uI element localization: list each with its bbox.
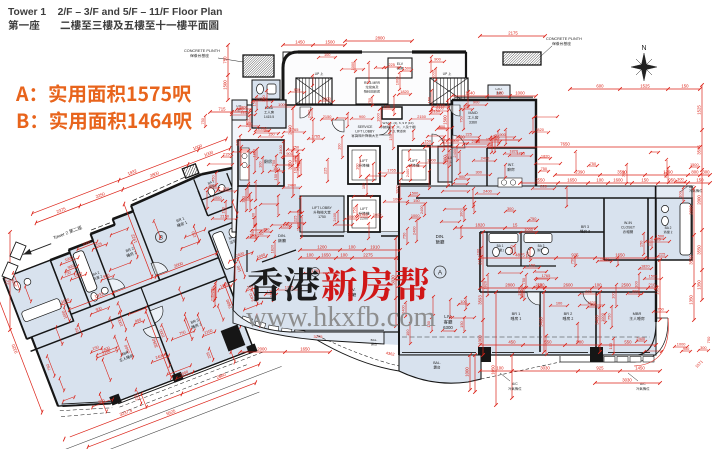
svg-text:3030: 3030	[622, 378, 632, 383]
svg-text:A/C: A/C	[512, 382, 518, 386]
svg-text:1350: 1350	[697, 280, 702, 290]
svg-text:2400: 2400	[296, 222, 301, 231]
svg-text:750: 750	[351, 206, 356, 213]
svg-text:225: 225	[241, 109, 248, 114]
svg-text:100: 100	[348, 245, 356, 250]
svg-text:15: 15	[513, 223, 518, 228]
svg-text:300: 300	[264, 128, 271, 133]
svg-text:1000: 1000	[411, 213, 420, 218]
svg-text:100: 100	[384, 104, 391, 109]
svg-text:1050: 1050	[491, 365, 496, 375]
svg-text:1500: 1500	[223, 80, 228, 90]
svg-text:1765: 1765	[312, 133, 321, 138]
svg-text:150: 150	[273, 173, 278, 180]
svg-text:1820: 1820	[444, 153, 449, 162]
svg-text:550: 550	[624, 340, 632, 345]
svg-text:BA 1: BA 1	[497, 244, 504, 248]
svg-text:100: 100	[306, 253, 314, 258]
svg-text:300: 300	[632, 289, 639, 294]
svg-text:1450: 1450	[295, 40, 305, 45]
svg-text:1600: 1600	[613, 178, 623, 183]
svg-text:2550: 2550	[535, 178, 545, 183]
svg-text:100: 100	[634, 280, 639, 287]
svg-text:900: 900	[294, 87, 301, 92]
svg-text:1820: 1820	[252, 148, 257, 157]
svg-text:1820: 1820	[269, 244, 274, 253]
svg-text:100: 100	[608, 342, 613, 349]
svg-text:5030: 5030	[391, 275, 396, 285]
svg-text:BR 1: BR 1	[512, 311, 521, 316]
svg-text:225: 225	[585, 289, 592, 294]
svg-text:100: 100	[459, 210, 464, 217]
svg-text:1650: 1650	[300, 347, 310, 352]
svg-text:1525: 1525	[640, 84, 650, 89]
svg-text:3275: 3275	[314, 334, 324, 339]
svg-text:100: 100	[324, 52, 331, 57]
svg-text:DIN.: DIN.	[278, 233, 286, 238]
svg-text:1000: 1000	[373, 212, 382, 217]
svg-text:LIFT LOBBY: LIFT LOBBY	[312, 206, 332, 210]
svg-text:100: 100	[496, 91, 504, 96]
svg-text:225: 225	[235, 139, 240, 146]
svg-text:MAID: MAID	[468, 111, 478, 115]
svg-text:225: 225	[663, 172, 668, 179]
svg-text:1000: 1000	[347, 214, 356, 219]
svg-text:1000: 1000	[435, 106, 444, 111]
svg-text:1765: 1765	[542, 273, 551, 278]
svg-text:CLOSET: CLOSET	[621, 226, 636, 230]
svg-text:225: 225	[388, 62, 395, 67]
svg-text:100: 100	[250, 212, 255, 219]
svg-text:2400: 2400	[306, 109, 311, 118]
svg-text:750: 750	[210, 286, 215, 293]
svg-text:1820: 1820	[475, 223, 485, 228]
svg-text:2150: 2150	[323, 114, 332, 119]
svg-text:1000: 1000	[677, 341, 686, 346]
svg-text:2800: 2800	[375, 36, 385, 41]
svg-text:1000: 1000	[509, 244, 514, 253]
svg-text:750: 750	[541, 166, 548, 171]
svg-text:900: 900	[473, 100, 480, 105]
svg-text:N: N	[641, 45, 646, 52]
svg-text:750: 750	[530, 216, 537, 221]
svg-text:3460: 3460	[595, 315, 600, 325]
svg-text:1820: 1820	[541, 153, 550, 158]
svg-text:550: 550	[544, 340, 552, 345]
svg-text:2400: 2400	[483, 188, 492, 193]
svg-text:750: 750	[211, 175, 216, 182]
svg-text:W-IN: W-IN	[624, 221, 632, 225]
svg-text:Tower 1 2/F – 3/F and 5/F –: Tower 1 2/F – 3/F and 5/F – 11/F Floor P…	[8, 7, 222, 18]
svg-text:1000: 1000	[519, 289, 524, 298]
svg-text:LIFT LOBBY: LIFT LOBBY	[355, 130, 375, 134]
svg-text:2400: 2400	[452, 148, 457, 157]
svg-text:225: 225	[536, 282, 543, 287]
svg-text:1820: 1820	[509, 148, 518, 153]
svg-text:2275: 2275	[363, 253, 373, 258]
svg-text:1750: 1750	[318, 215, 326, 219]
svg-text:6300: 6300	[443, 325, 453, 330]
svg-text:1350: 1350	[655, 285, 660, 295]
svg-text:1650: 1650	[321, 253, 331, 258]
svg-text:1650: 1650	[567, 178, 577, 183]
svg-text:1765: 1765	[387, 167, 396, 172]
svg-text:1000: 1000	[478, 335, 483, 345]
svg-text:www.hkxfb.com: www.hkxfb.com	[246, 302, 436, 333]
svg-text:900: 900	[499, 132, 506, 137]
svg-text:150: 150	[641, 178, 649, 183]
svg-text:150: 150	[696, 178, 704, 183]
svg-text:3460: 3460	[539, 317, 544, 327]
svg-text:150: 150	[459, 320, 464, 327]
svg-text:2400: 2400	[287, 183, 296, 188]
svg-text:750: 750	[402, 232, 407, 239]
svg-text:600: 600	[596, 84, 604, 89]
svg-text:750: 750	[590, 161, 597, 166]
svg-text:7650: 7650	[560, 142, 570, 147]
svg-text:1500: 1500	[402, 66, 411, 71]
svg-text:2500: 2500	[621, 283, 631, 288]
svg-text:150: 150	[426, 96, 431, 103]
svg-text:100: 100	[678, 190, 683, 197]
svg-text:1820: 1820	[600, 256, 609, 261]
svg-text:300: 300	[677, 176, 684, 181]
svg-text:900: 900	[286, 151, 293, 156]
svg-text:1000: 1000	[394, 76, 399, 85]
svg-text:100: 100	[393, 197, 400, 202]
svg-text:225: 225	[540, 183, 547, 188]
svg-text:225: 225	[209, 295, 214, 302]
svg-text:3030: 3030	[540, 366, 550, 371]
svg-text:2150: 2150	[220, 213, 229, 218]
svg-text:1765: 1765	[359, 212, 368, 217]
svg-text:1500: 1500	[322, 96, 331, 101]
svg-text:1000: 1000	[375, 112, 380, 121]
svg-text:1640: 1640	[465, 91, 475, 96]
svg-text:INT.: INT.	[508, 163, 515, 167]
svg-text:3550: 3550	[697, 245, 702, 255]
svg-text:CONCRETE PLINTH: CONCRETE PLINTH	[184, 49, 220, 53]
svg-text:750: 750	[657, 306, 664, 311]
svg-text:300: 300	[700, 345, 707, 350]
svg-text:100: 100	[596, 178, 604, 183]
svg-text:2400: 2400	[419, 205, 424, 214]
svg-text:2000: 2000	[257, 347, 267, 352]
svg-text:BR 2: BR 2	[564, 311, 573, 316]
svg-text:750: 750	[293, 144, 300, 149]
svg-text:2000: 2000	[697, 195, 702, 205]
svg-text:150: 150	[486, 136, 493, 141]
svg-text:100: 100	[594, 283, 602, 288]
svg-text:100: 100	[293, 166, 298, 173]
svg-text:750: 750	[223, 56, 228, 64]
svg-text:750: 750	[458, 115, 463, 122]
svg-text:3593: 3593	[478, 295, 483, 305]
svg-text:225: 225	[654, 236, 661, 241]
svg-text:225: 225	[465, 131, 472, 136]
svg-text:1200: 1200	[317, 245, 327, 250]
svg-text:1525: 1525	[697, 105, 702, 115]
svg-text:100: 100	[257, 161, 262, 168]
svg-text:1500: 1500	[649, 274, 658, 279]
svg-text:W.M.C. (2), 6, 9 P (1F): W.M.C. (2), 6, 9 P (1F)	[382, 121, 413, 125]
svg-text:2400: 2400	[411, 226, 416, 235]
svg-text:100: 100	[340, 253, 348, 258]
svg-text:100: 100	[261, 94, 266, 101]
svg-text:1000: 1000	[465, 367, 470, 377]
svg-text:A/C: A/C	[640, 382, 646, 386]
svg-text:3360: 3360	[469, 121, 477, 125]
svg-text:A: A	[438, 270, 443, 277]
svg-text:100: 100	[496, 366, 504, 371]
svg-text:900: 900	[459, 174, 466, 179]
svg-text:1000: 1000	[278, 102, 287, 107]
svg-text:1820: 1820	[400, 89, 409, 94]
svg-text:2400: 2400	[278, 144, 283, 153]
svg-text:1820: 1820	[244, 118, 249, 127]
svg-text:2400: 2400	[405, 168, 410, 177]
svg-text:150: 150	[424, 139, 431, 144]
svg-text:150: 150	[257, 231, 264, 236]
svg-text:150: 150	[413, 198, 420, 203]
svg-text:2800: 2800	[505, 283, 515, 288]
svg-text:225: 225	[293, 216, 298, 223]
svg-text:1500: 1500	[410, 191, 419, 196]
svg-text:150: 150	[529, 262, 536, 267]
svg-text:150: 150	[251, 99, 256, 106]
svg-text:225: 225	[646, 240, 651, 247]
svg-text:100: 100	[476, 248, 481, 255]
svg-text:1000: 1000	[515, 91, 525, 96]
svg-text:LIV.: LIV.	[444, 314, 451, 319]
svg-text:225: 225	[659, 251, 666, 256]
svg-text:300: 300	[702, 170, 710, 175]
svg-text:100: 100	[223, 186, 230, 191]
svg-text:1650: 1650	[615, 253, 625, 258]
svg-text:750: 750	[521, 277, 526, 284]
svg-text:1000: 1000	[427, 158, 436, 163]
svg-text:SERVICE: SERVICE	[358, 125, 374, 129]
svg-text:100: 100	[273, 166, 280, 171]
svg-text:750: 750	[621, 170, 626, 177]
svg-text:1820: 1820	[587, 300, 596, 305]
svg-text:2400: 2400	[332, 212, 337, 221]
svg-text:1000: 1000	[395, 184, 400, 193]
svg-text:100: 100	[611, 292, 616, 299]
svg-text:LIFT: LIFT	[360, 159, 368, 163]
svg-text:3595: 3595	[697, 145, 702, 155]
svg-text:3550: 3550	[689, 255, 694, 265]
svg-text:450: 450	[508, 340, 516, 345]
svg-text:DIN.: DIN.	[436, 234, 445, 239]
svg-text:BR 3: BR 3	[581, 225, 589, 229]
svg-text:300: 300	[475, 169, 482, 174]
svg-text:BAL.: BAL.	[371, 338, 378, 342]
svg-text:1350: 1350	[689, 295, 694, 305]
svg-text:2150: 2150	[417, 114, 426, 119]
svg-text:750: 750	[200, 117, 205, 124]
svg-text:900: 900	[359, 114, 366, 119]
svg-text:715: 715	[218, 107, 226, 112]
svg-text:2000: 2000	[689, 205, 694, 215]
svg-text:100: 100	[337, 143, 342, 150]
svg-text:150: 150	[638, 240, 643, 247]
svg-text:MBR: MBR	[633, 311, 642, 316]
svg-text:1500: 1500	[690, 162, 699, 167]
svg-text:900: 900	[434, 56, 441, 61]
svg-text:1820: 1820	[535, 127, 544, 132]
svg-text:1415.5: 1415.5	[264, 115, 274, 119]
svg-text:BA 2: BA 2	[665, 226, 672, 230]
svg-text:1765: 1765	[290, 127, 299, 132]
svg-text:150: 150	[361, 182, 366, 189]
svg-text:750: 750	[367, 97, 372, 104]
svg-text:750: 750	[606, 313, 611, 320]
svg-text:150: 150	[681, 84, 689, 89]
svg-text:CONCRETE PLINTH: CONCRETE PLINTH	[546, 37, 582, 41]
svg-text:1820: 1820	[641, 264, 650, 269]
svg-text:300: 300	[507, 206, 514, 211]
svg-text:100: 100	[355, 163, 360, 170]
svg-text:RS & MRR: RS & MRR	[364, 81, 381, 85]
svg-text:800: 800	[691, 170, 699, 175]
svg-text:150: 150	[388, 133, 393, 140]
svg-text:100: 100	[556, 300, 563, 305]
svg-text:100: 100	[486, 142, 491, 149]
svg-text:1450: 1450	[635, 366, 645, 371]
svg-text:1500: 1500	[450, 138, 459, 143]
svg-text:1500: 1500	[325, 40, 335, 45]
svg-text:2150: 2150	[223, 151, 232, 156]
svg-text:2400: 2400	[636, 336, 645, 341]
svg-text:750: 750	[525, 251, 530, 258]
svg-text:LIFT: LIFT	[410, 159, 418, 163]
svg-text:1820: 1820	[482, 280, 487, 289]
svg-text:1000: 1000	[213, 195, 222, 200]
svg-text:2175: 2175	[508, 31, 518, 36]
svg-text:100: 100	[460, 299, 467, 304]
svg-text:1000: 1000	[524, 227, 533, 232]
svg-text:LIFT: LIFT	[360, 207, 368, 211]
svg-text:BAL.: BAL.	[433, 361, 441, 365]
svg-text:225: 225	[322, 168, 327, 175]
svg-text:1910: 1910	[370, 245, 380, 250]
svg-text:100: 100	[249, 232, 256, 237]
svg-text:2400: 2400	[481, 156, 490, 161]
svg-text:750: 750	[706, 336, 711, 343]
svg-text:1000: 1000	[600, 312, 605, 321]
svg-text:2600: 2600	[563, 283, 573, 288]
svg-text:750: 750	[570, 257, 575, 264]
svg-text:925: 925	[596, 366, 604, 371]
